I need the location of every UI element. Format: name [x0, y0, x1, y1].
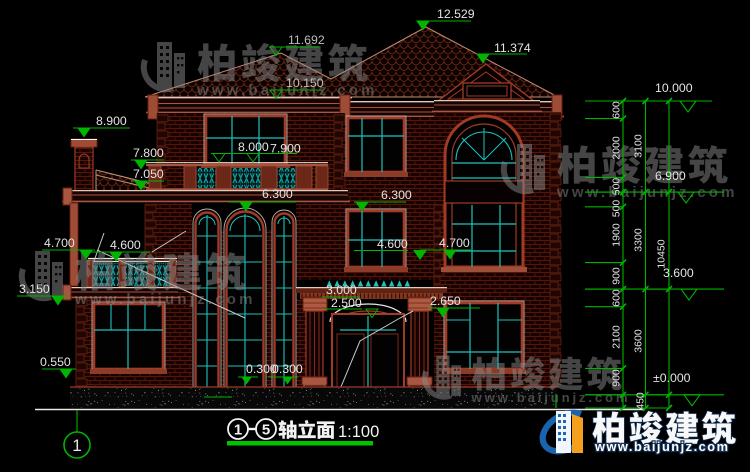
svg-text:11.692: 11.692 — [288, 33, 325, 47]
svg-text:10.000: 10.000 — [655, 81, 693, 95]
svg-text:6.300: 6.300 — [262, 187, 293, 201]
svg-text:4.700: 4.700 — [439, 236, 470, 250]
svg-text:1900: 1900 — [611, 223, 623, 247]
svg-text:12.529: 12.529 — [437, 7, 475, 21]
svg-text:3.150: 3.150 — [19, 282, 50, 296]
svg-text:8.000: 8.000 — [238, 140, 269, 154]
svg-text:3600: 3600 — [633, 329, 645, 353]
svg-text:500: 500 — [611, 200, 623, 218]
svg-text:7.800: 7.800 — [133, 146, 164, 160]
svg-text:11.374: 11.374 — [494, 41, 531, 55]
svg-text:7.050: 7.050 — [133, 167, 164, 181]
svg-text:600: 600 — [611, 101, 623, 119]
svg-text:6.900: 6.900 — [655, 169, 686, 183]
svg-text:0.550: 0.550 — [40, 355, 71, 369]
svg-text:2000: 2000 — [611, 136, 623, 160]
svg-text:±0.000: ±0.000 — [653, 371, 691, 385]
svg-text:900: 900 — [611, 267, 623, 285]
svg-text:www.baijunjz.com: www.baijunjz.com — [594, 439, 729, 454]
svg-text:3.000: 3.000 — [326, 283, 357, 297]
svg-text:4.700: 4.700 — [44, 236, 75, 250]
svg-text:6.300: 6.300 — [381, 188, 412, 202]
svg-text:3300: 3300 — [633, 228, 645, 252]
svg-text:4.600: 4.600 — [110, 238, 141, 252]
svg-text:3100: 3100 — [633, 134, 645, 158]
svg-text:1:100: 1:100 — [338, 423, 379, 441]
svg-text:10.150: 10.150 — [286, 76, 324, 90]
svg-text:0.300: 0.300 — [272, 362, 303, 376]
svg-text:450: 450 — [635, 392, 647, 410]
svg-text:1: 1 — [234, 422, 242, 439]
svg-text:8.900: 8.900 — [96, 114, 127, 128]
svg-text:3.600: 3.600 — [663, 266, 694, 280]
svg-text:500: 500 — [611, 178, 623, 196]
svg-text:5: 5 — [262, 422, 270, 439]
svg-text:1: 1 — [72, 436, 81, 455]
svg-text:2100: 2100 — [611, 325, 623, 349]
svg-text:900: 900 — [611, 369, 623, 387]
svg-text:2.650: 2.650 — [430, 294, 461, 308]
svg-text:7.900: 7.900 — [270, 142, 301, 156]
svg-text:600: 600 — [611, 289, 623, 307]
svg-text:2.500: 2.500 — [331, 296, 362, 310]
svg-text:4.600: 4.600 — [377, 237, 408, 251]
svg-text:10450: 10450 — [656, 239, 668, 268]
